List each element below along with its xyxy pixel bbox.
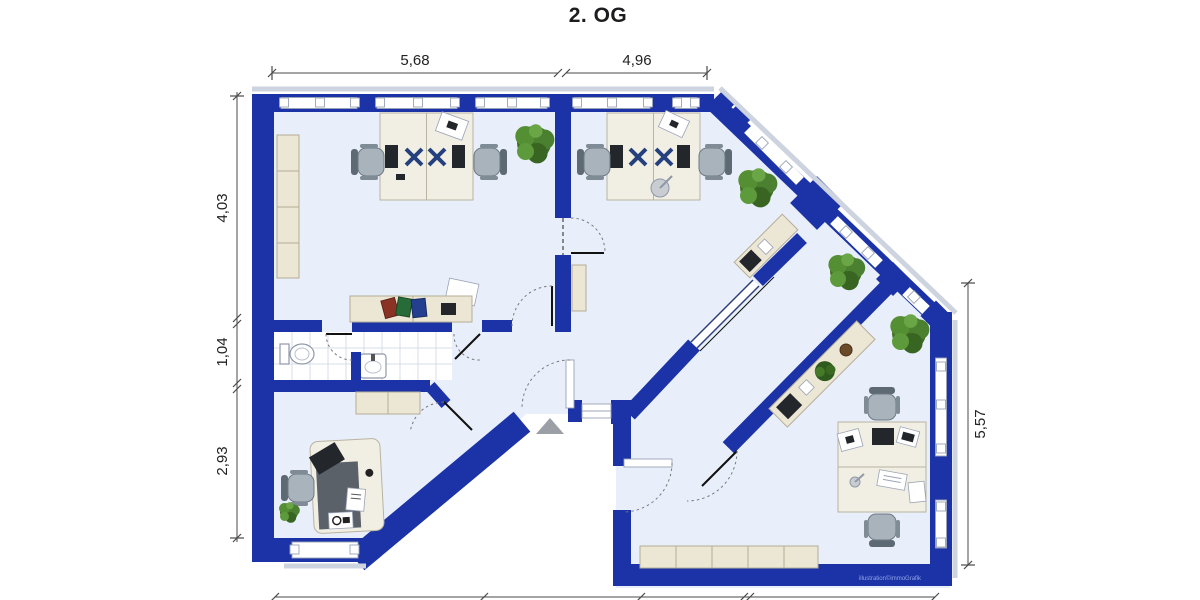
bathroom (274, 332, 452, 380)
dim-right-height: 5,57 (972, 409, 989, 438)
floor-plan: 2. OG (0, 0, 1200, 600)
monitor-icon (385, 145, 398, 168)
monitor-icon (452, 145, 465, 168)
office-chair (864, 387, 900, 420)
toilet-icon (280, 344, 289, 364)
credit-label: illustration©immoGrafik (859, 575, 922, 582)
dim-top-right: 4,96 (622, 52, 651, 69)
office-chair (474, 144, 507, 180)
plan-title: 2. OG (569, 4, 628, 27)
toilet-bowl (290, 344, 314, 364)
dim-left-middle: 1,04 (214, 337, 231, 366)
entrance-door-leaf (566, 360, 574, 408)
dim-left-lower: 2,93 (214, 446, 231, 475)
books (381, 297, 427, 319)
monitor-icon (677, 145, 690, 168)
floor-plan-page: 2. OG (0, 0, 1200, 600)
desk-item (396, 174, 405, 180)
office-chair (577, 144, 610, 180)
desk-group (308, 438, 384, 534)
office-chair (281, 470, 314, 506)
office-chair (699, 144, 732, 180)
right-wing-door-leaf (624, 459, 672, 467)
laptop-icon (441, 303, 456, 315)
office-chair (351, 144, 384, 180)
sink-faucet (371, 354, 375, 361)
monitor-icon (610, 145, 623, 168)
office-chair (864, 514, 900, 547)
hall-cabinet (572, 265, 586, 311)
monitor-icon (872, 428, 894, 445)
dim-left-upper: 4,03 (214, 193, 231, 222)
sideboard (640, 546, 818, 568)
dim-top-left: 5,68 (400, 52, 429, 69)
